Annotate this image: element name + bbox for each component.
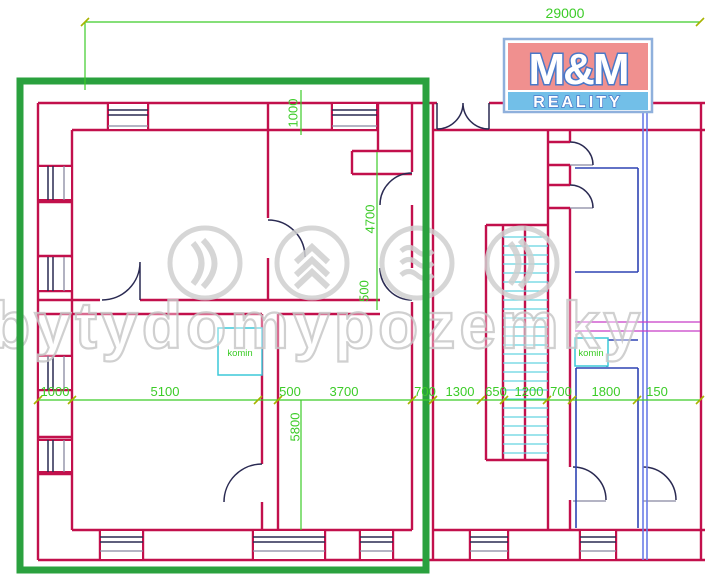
dim-row-10: 150 [646, 384, 668, 399]
dim-row-5: 1300 [446, 384, 475, 399]
floorplan-canvas: komin komin bytydomypozemky 29000 1000 5… [0, 0, 705, 578]
dim-row-6: 650 [485, 384, 507, 399]
dim-room-height: 5800 [288, 413, 303, 442]
logo-bottom-text: REALITY [533, 94, 622, 111]
dim-hall-height: 4700 [363, 205, 378, 234]
watermark-glyph-house [296, 247, 328, 287]
logo-top-text: M&M [528, 45, 627, 94]
dim-row-0: 1000 [41, 384, 70, 399]
dim-top-wall: 1000 [286, 99, 301, 128]
floor-plan-svg: komin komin bytydomypozemky 29000 1000 5… [0, 0, 705, 578]
watermark-glyph-waves-1 [193, 240, 215, 287]
dim-mid-wall: 500 [357, 280, 372, 302]
watermark-text: bytydomypozemky [0, 288, 644, 362]
mm-reality-logo: M&M REALITY [504, 39, 652, 112]
dim-row-7: 1200 [515, 384, 544, 399]
dim-row-8: 700 [550, 384, 572, 399]
dim-row-9: 1800 [592, 384, 621, 399]
dim-row-3: 3700 [330, 384, 359, 399]
dim-row-2: 500 [279, 384, 301, 399]
dim-row-1: 5100 [151, 384, 180, 399]
dim-row-4: 700 [414, 384, 436, 399]
dim-overall: 29000 [546, 5, 585, 21]
